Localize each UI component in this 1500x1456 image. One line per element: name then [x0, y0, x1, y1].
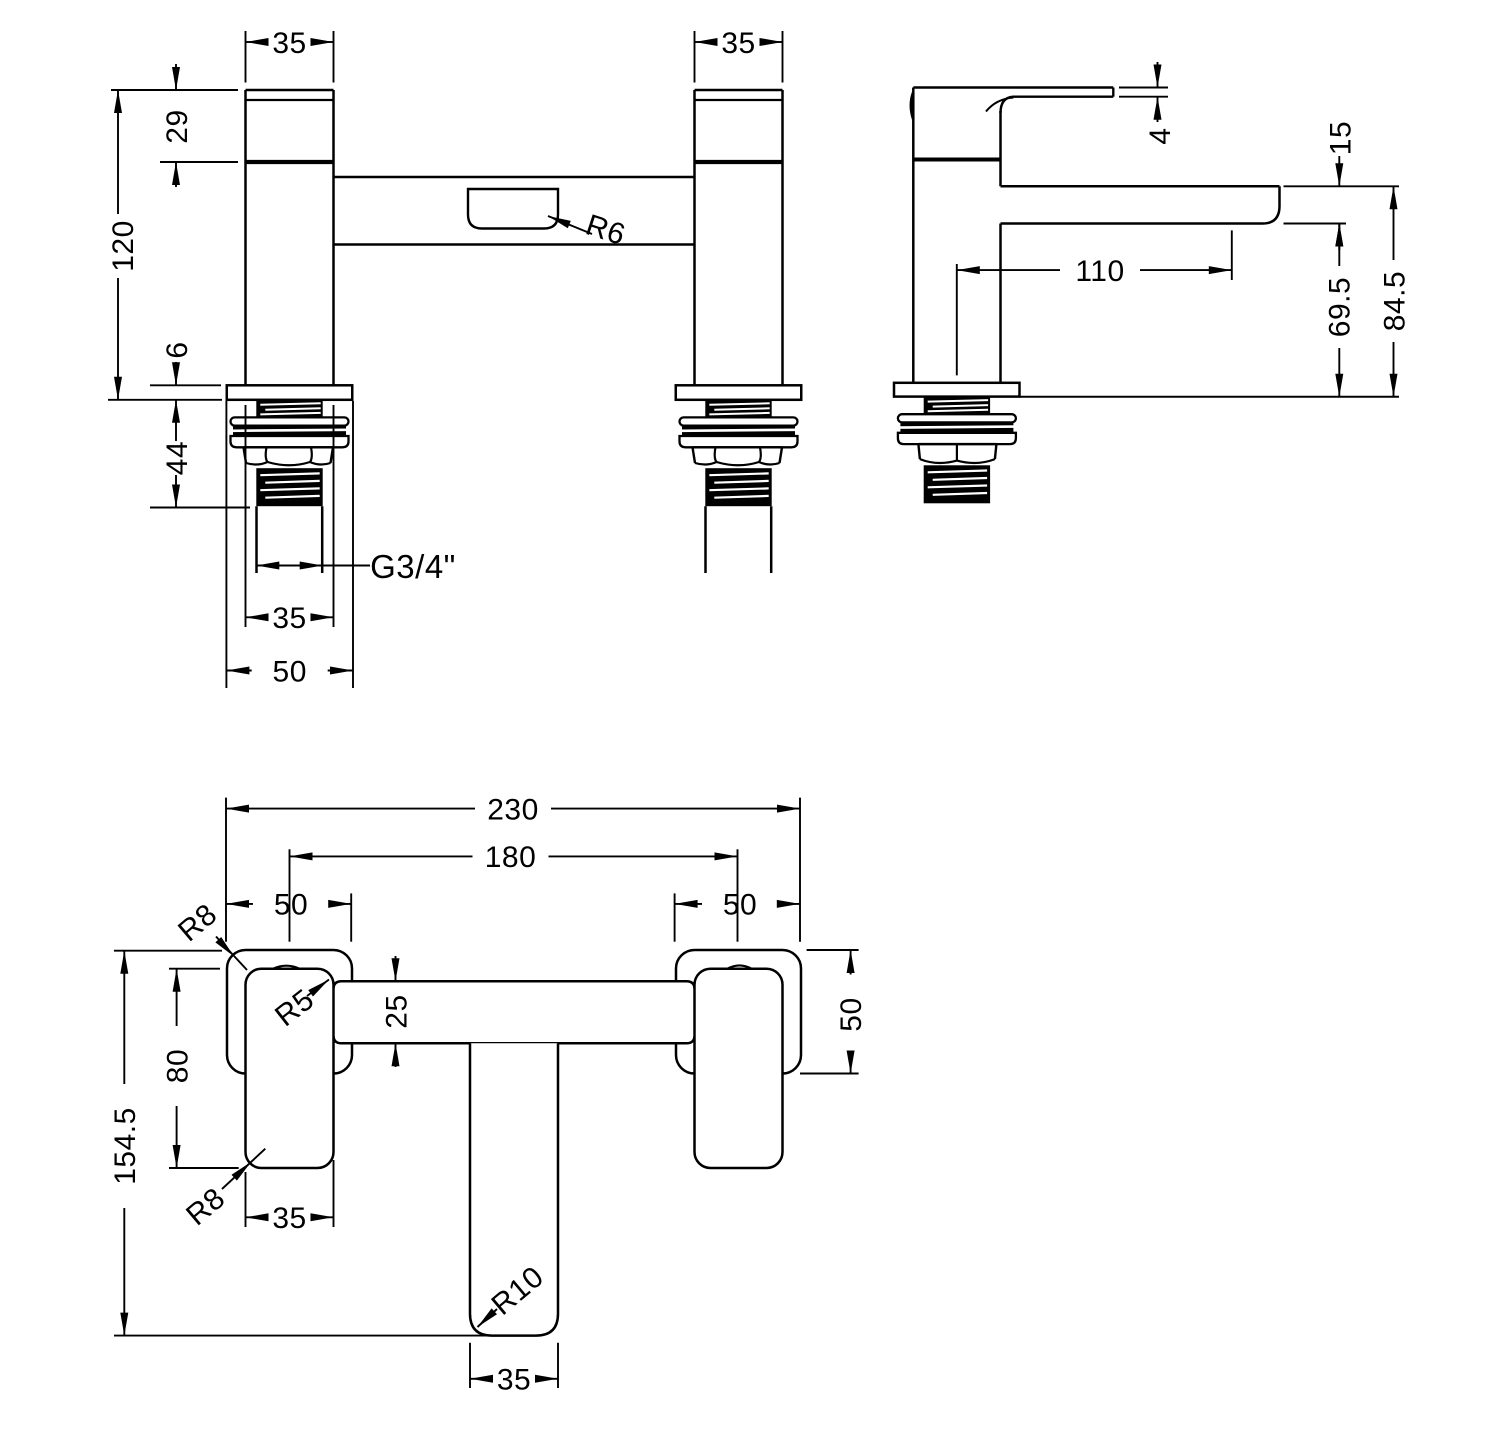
- svg-text:35: 35: [497, 1364, 531, 1397]
- svg-text:230: 230: [487, 793, 539, 826]
- svg-text:50: 50: [723, 889, 757, 922]
- svg-text:84.5: 84.5: [1378, 271, 1411, 331]
- svg-text:154.5: 154.5: [109, 1107, 142, 1185]
- svg-text:35: 35: [272, 602, 306, 635]
- svg-text:25: 25: [380, 994, 413, 1028]
- svg-text:29: 29: [161, 109, 194, 143]
- svg-text:35: 35: [721, 27, 755, 60]
- svg-text:35: 35: [272, 27, 306, 60]
- svg-text:180: 180: [485, 841, 537, 874]
- svg-text:80: 80: [161, 1049, 194, 1083]
- svg-text:69.5: 69.5: [1323, 277, 1356, 337]
- svg-text:120: 120: [107, 220, 140, 272]
- svg-text:6: 6: [161, 341, 194, 358]
- svg-text:G3/4": G3/4": [370, 548, 456, 585]
- svg-text:44: 44: [161, 441, 194, 475]
- svg-text:110: 110: [1075, 255, 1124, 288]
- svg-text:50: 50: [835, 997, 868, 1031]
- svg-text:50: 50: [274, 889, 308, 922]
- svg-text:50: 50: [273, 655, 307, 688]
- svg-text:35: 35: [272, 1202, 306, 1235]
- svg-text:15: 15: [1324, 121, 1357, 155]
- svg-text:4: 4: [1144, 127, 1177, 144]
